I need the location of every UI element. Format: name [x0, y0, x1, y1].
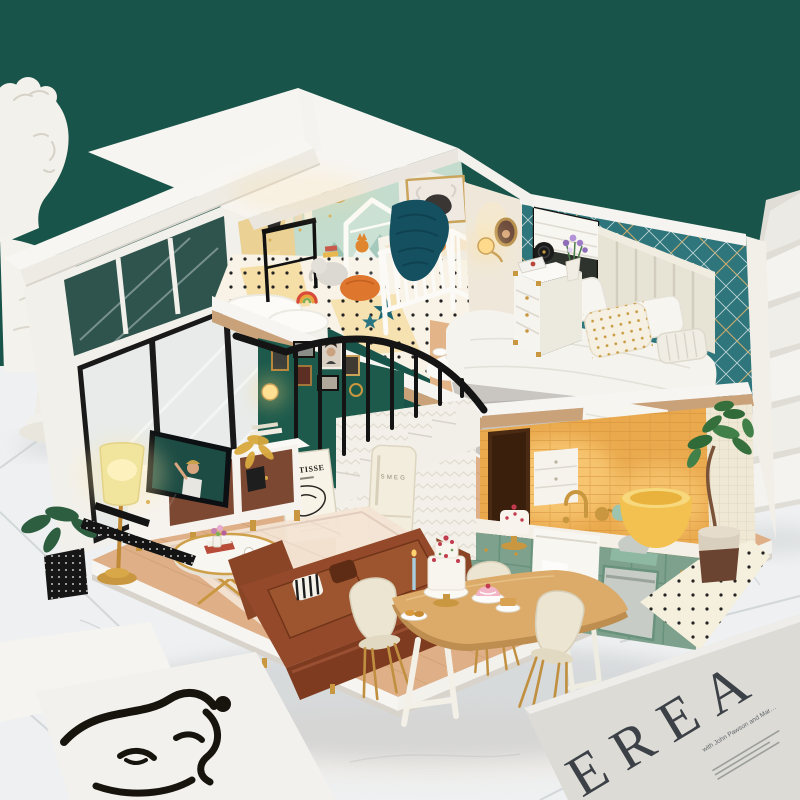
pillow-ribbed — [656, 328, 708, 364]
fox-plush — [356, 240, 369, 253]
slipper — [433, 348, 447, 355]
white-cabinet — [534, 448, 578, 506]
wall-sconce — [468, 228, 504, 264]
two-tone-planter — [698, 526, 740, 583]
photo-scene: SMEG MATISSE — [0, 0, 800, 800]
orange-pouf — [340, 275, 380, 301]
stair-sconce — [254, 376, 286, 408]
